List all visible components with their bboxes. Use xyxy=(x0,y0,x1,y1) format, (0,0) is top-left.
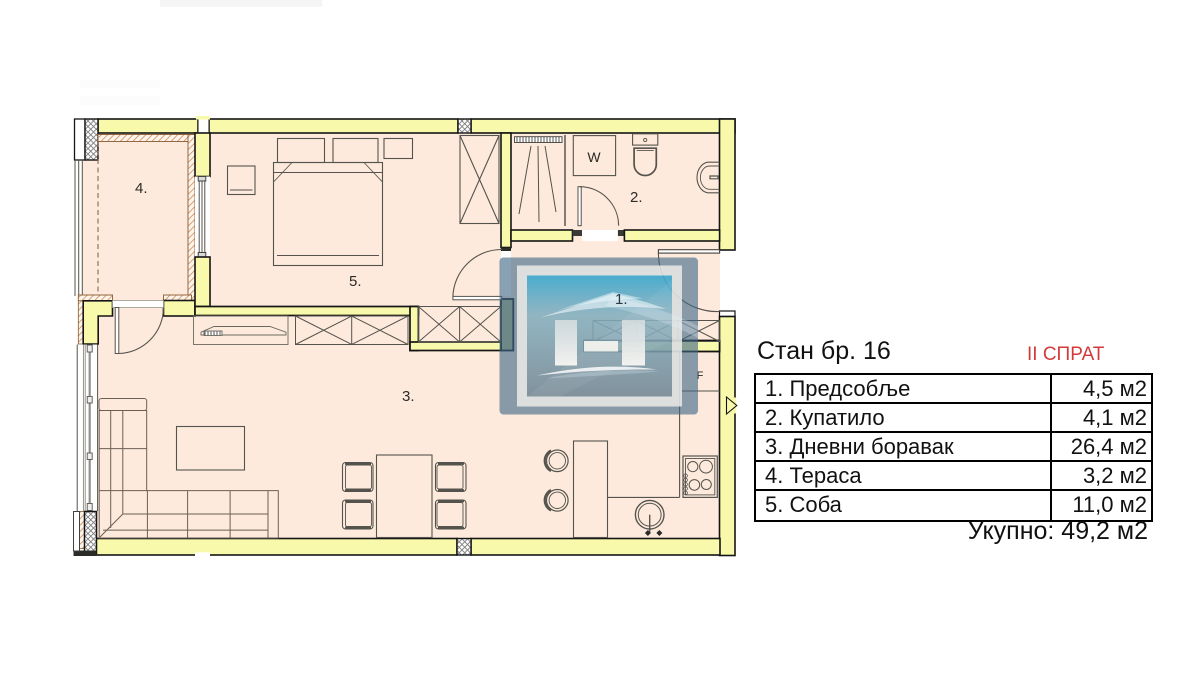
svg-text:5.: 5. xyxy=(349,273,362,290)
svg-text:3.: 3. xyxy=(402,388,415,405)
svg-text:W: W xyxy=(587,149,601,165)
svg-text:1.: 1. xyxy=(615,291,628,308)
svg-text:2.: 2. xyxy=(630,189,643,206)
svg-text:4.: 4. xyxy=(135,180,148,197)
